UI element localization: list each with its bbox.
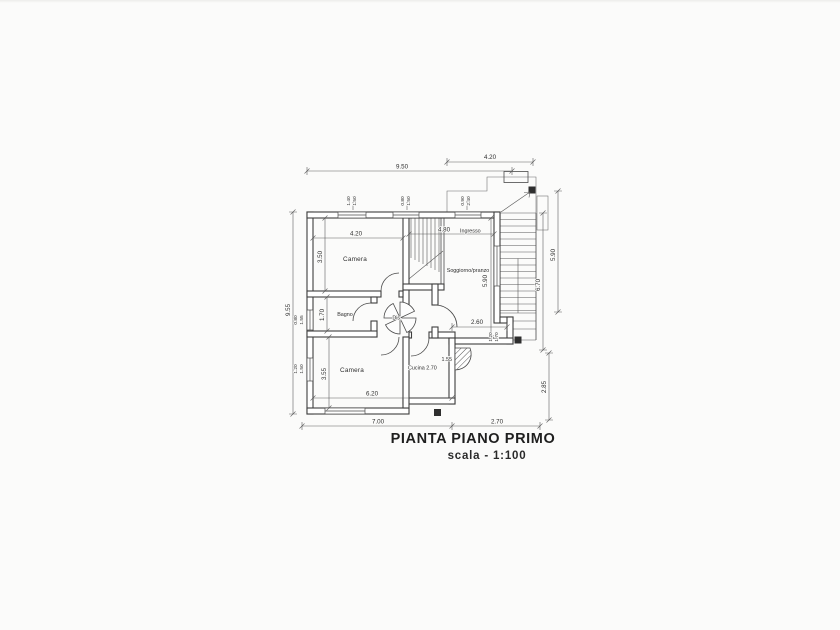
window-soggiorno-right	[494, 246, 500, 286]
wall-bagno-top-b	[399, 291, 403, 297]
dim-camera-top-height: 3.50	[317, 250, 324, 263]
wall-dis-soggiorno-b	[432, 327, 438, 338]
dim-terrace-width: 2.60	[471, 319, 484, 326]
wall-cucina-right	[449, 338, 455, 404]
window-top-3	[455, 212, 481, 218]
dim-win-top1-h: 1.50	[352, 196, 358, 206]
wall-bagno-right-a	[371, 297, 377, 303]
dim-win-left2-w: 1.20	[293, 364, 299, 374]
dim-right-lower: 2.85	[541, 380, 548, 393]
window-top-2	[393, 212, 419, 218]
wall-bagno-bottom	[307, 331, 377, 337]
plan-title: PIANTA PIANO PRIMO	[391, 431, 556, 447]
dim-win-left2-h: 1.50	[299, 364, 305, 374]
door-bagno	[353, 303, 371, 321]
label-soggiorno: Soggiorno/pranzo	[447, 268, 490, 274]
label-camera-top: Camera	[343, 256, 367, 263]
scanned-floor-plan-page: 4.20 9.50 9.55 5.90 6.70 2.85 7.00 2.70 …	[0, 0, 840, 630]
dim-win-left1-h: 1.55	[299, 315, 305, 325]
dim-stair-right: 5.90	[550, 248, 557, 261]
door-cucina	[411, 338, 429, 356]
wall-soggiorno-bottom	[449, 338, 513, 344]
title-block: PIANTA PIANO PRIMO scala - 1:100	[391, 431, 556, 462]
plan-scale: scala - 1:100	[448, 450, 527, 462]
window-top-1	[338, 212, 366, 218]
wall-cucina-bottom	[403, 398, 455, 404]
label-camera-bottom: Camera	[340, 367, 364, 374]
dim-bottom-left: 7.00	[372, 419, 385, 426]
dim-bagno-height: 1.70	[319, 308, 326, 321]
dim-left-total: 9.55	[285, 303, 292, 316]
dim-bottom-right: 2.70	[491, 419, 504, 426]
dim-win-top2-h: 1.50	[406, 196, 412, 206]
dim-win-left1-w: 0.80	[293, 315, 299, 325]
label-cucina-depth: 1.55	[442, 357, 453, 363]
dim-camera-top-width: 4.20	[350, 231, 363, 238]
window-bottom-camera	[325, 408, 365, 414]
wall-camera2-right	[403, 337, 409, 408]
dim-camera-bottom-width: 6.20	[366, 391, 379, 398]
door-camera-top	[381, 273, 399, 291]
label-ingresso: Ingresso	[460, 229, 481, 235]
dim-camera-bottom-height: 3.55	[321, 367, 328, 380]
dim-ingresso-width: 4.80	[438, 227, 451, 234]
stair-direction-arrow	[501, 192, 530, 212]
window-left-camera	[307, 358, 313, 381]
label-disimpegno: Dis.	[392, 316, 401, 322]
door-soggiorno	[435, 305, 457, 327]
dim-right-total: 6.70	[535, 278, 542, 291]
wall-dis-soggiorno-a	[432, 284, 438, 305]
dim-win-right-w: 1.20	[488, 332, 494, 342]
stair-break-line	[404, 251, 443, 283]
dim-top-total: 9.50	[396, 164, 409, 171]
hatched-balcony-corner	[455, 348, 471, 370]
dim-win-top2-w: 0.80	[400, 196, 406, 206]
label-bagno: Bagno	[337, 312, 353, 318]
pillar-se	[515, 337, 522, 344]
dim-win-top1-w: 1.40	[346, 196, 352, 206]
dim-win-top3-h: 2.40	[466, 196, 472, 206]
floor-plan-drawing: 4.20 9.50 9.55 5.90 6.70 2.85 7.00 2.70 …	[0, 0, 840, 630]
window-left-bagno	[307, 310, 313, 330]
dim-soggiorno-height: 5.90	[482, 274, 489, 287]
wall-camera1-right	[403, 218, 409, 307]
wall-bagno-top-a	[307, 291, 381, 297]
dim-win-top3-w: 0.90	[460, 196, 466, 206]
dim-top-landing: 4.20	[484, 154, 497, 161]
label-cucina: Cucina 2.70	[408, 366, 437, 372]
door-camera-bottom	[381, 337, 399, 355]
dim-win-right-h: 1.70	[494, 332, 500, 342]
pillar-bottom	[434, 409, 441, 416]
